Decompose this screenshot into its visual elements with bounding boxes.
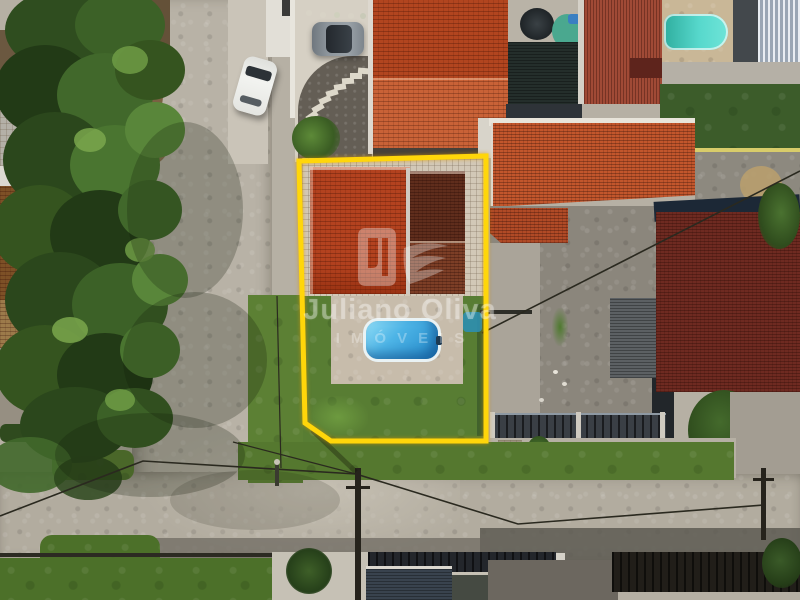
grass-patch-intersection-nw bbox=[52, 450, 134, 480]
left-neighbor-rust-roof bbox=[0, 186, 32, 300]
left-neighbor-tan-roof bbox=[0, 300, 28, 348]
aerial-photo: Juliano Oliva IMÓVEIS bbox=[0, 0, 800, 600]
left-neighbor-wall bbox=[0, 166, 36, 186]
terrace-white-wall bbox=[290, 0, 295, 118]
striped-pergola-roof bbox=[758, 0, 800, 62]
right-driveway bbox=[730, 392, 800, 474]
right-concrete-strip bbox=[662, 62, 800, 86]
palm-top-right bbox=[758, 183, 800, 249]
small-orange-roof2 bbox=[490, 208, 568, 243]
yard-concrete-path bbox=[490, 243, 540, 439]
lawn-sunlit-spot bbox=[308, 396, 368, 438]
main-house-roof-orange bbox=[310, 167, 410, 294]
left-neighbor-gray-roof bbox=[0, 78, 38, 166]
bottom-right-bushes bbox=[762, 538, 800, 588]
bottom-dark-gravel bbox=[488, 560, 618, 600]
main-house-roof-dark-section bbox=[410, 171, 465, 241]
stepping-stone bbox=[350, 73, 362, 79]
suv-glass-roof bbox=[326, 25, 352, 53]
dark-gray-roof bbox=[508, 42, 580, 106]
bottom-blue-roof bbox=[366, 566, 452, 600]
main-house-roof-brown-section bbox=[410, 241, 465, 294]
brick-roof-dark-band bbox=[630, 58, 662, 78]
fence-post bbox=[490, 412, 495, 440]
bottom-palm bbox=[286, 548, 332, 594]
car-rear-glass bbox=[239, 95, 262, 108]
top-neighbor-roof-upper bbox=[373, 0, 510, 80]
yard-speck bbox=[553, 370, 558, 374]
bottom-structure bbox=[452, 575, 488, 600]
terrace-bush bbox=[292, 116, 340, 160]
right-neighbor-orange-roof bbox=[491, 123, 695, 207]
blue-tarp-object bbox=[463, 312, 482, 332]
roof-ridge-line bbox=[406, 168, 410, 294]
yard-weed bbox=[552, 308, 568, 346]
metal-fence bbox=[490, 413, 666, 439]
pool-ladder bbox=[436, 336, 442, 345]
dirt-yard bbox=[0, 30, 40, 78]
dark-structure bbox=[733, 0, 758, 68]
car-windshield bbox=[245, 65, 273, 82]
silver-suv bbox=[312, 22, 364, 56]
left-boundary-wall bbox=[0, 348, 118, 428]
flower-pot bbox=[306, 10, 312, 16]
grass-verge-south bbox=[238, 442, 734, 480]
pool-wall-segment bbox=[480, 310, 532, 314]
swimming-pool bbox=[366, 321, 438, 359]
brick-striped-roof bbox=[584, 0, 662, 104]
left-wall-hedge bbox=[0, 424, 120, 442]
patio-umbrella bbox=[520, 8, 554, 40]
neighbor-pool bbox=[664, 14, 728, 50]
